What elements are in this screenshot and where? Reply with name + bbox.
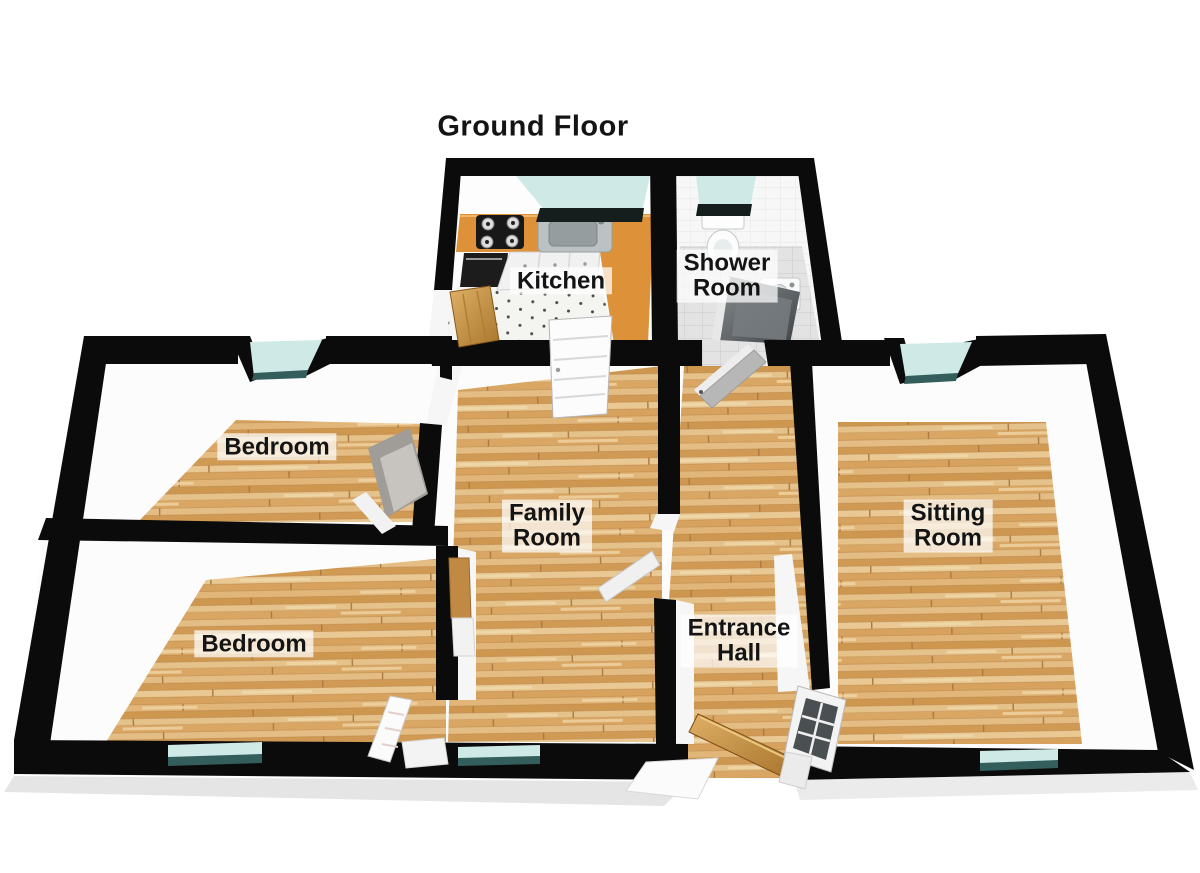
room-label-shower-room: Shower Room (677, 250, 778, 303)
shower-south-wall (764, 340, 890, 366)
kitchen-window-sill (536, 208, 644, 222)
kitchen-sink-basin (549, 221, 597, 246)
family-hall-wall-lower (654, 598, 676, 744)
room-label-bedroom-top: Bedroom (217, 433, 336, 460)
floor-plan-stage: Ground Floor Kitchen Shower Room Bedroom… (0, 0, 1200, 873)
family-room-unit (452, 618, 475, 656)
kitchen-south-wall-right (610, 340, 702, 366)
room-label-family-room: Family Room (502, 500, 592, 553)
room-label-sitting-line2: Room (911, 526, 986, 551)
room-label-bedroom-bottom: Bedroom (194, 630, 313, 657)
bathroom-tap (790, 283, 795, 288)
family-room-floor (448, 366, 662, 742)
room-label-family-line2: Room (509, 526, 585, 551)
room-label-sitting-room: Sitting Room (904, 500, 993, 553)
room-label-kitchen: Kitchen (510, 267, 612, 294)
room-label-bedroom-top-text: Bedroom (224, 434, 329, 459)
room-label-family-line1: Family (509, 501, 585, 526)
shadow-bottom-left (4, 776, 688, 806)
shower-door-hinge (699, 390, 703, 394)
room-label-kitchen-text: Kitchen (517, 268, 605, 293)
room-label-bedroom-bottom-text: Bedroom (201, 631, 306, 656)
shower-window-sill (696, 204, 752, 216)
top-block-north-wall (446, 158, 800, 176)
kitchen-family-door-knob (556, 368, 560, 372)
room-label-entrance-line2: Hall (688, 641, 791, 666)
bedroom-bottom-door-threshold (402, 738, 448, 768)
kitchen-family-door (549, 316, 612, 418)
south-outer-wall-left (14, 740, 688, 780)
family-room-sideboard (449, 558, 471, 618)
family-hall-wall-upper (658, 362, 680, 514)
sitting-room-floor (838, 422, 1082, 744)
kitchen-back-door (450, 286, 499, 347)
floor-title: Ground Floor (437, 111, 628, 144)
room-label-entrance-line1: Entrance (688, 616, 791, 641)
kitchen-shower-divider-wall (650, 158, 678, 346)
north-wall-segment-3 (976, 334, 1106, 366)
room-label-entrance-hall: Entrance Hall (681, 615, 798, 668)
shower-window (696, 176, 756, 208)
bedroom-top-door-stub (440, 355, 452, 380)
room-label-sitting-line1: Sitting (911, 501, 986, 526)
room-label-shower-line1: Shower (684, 251, 771, 276)
room-label-shower-line2: Room (684, 276, 771, 301)
